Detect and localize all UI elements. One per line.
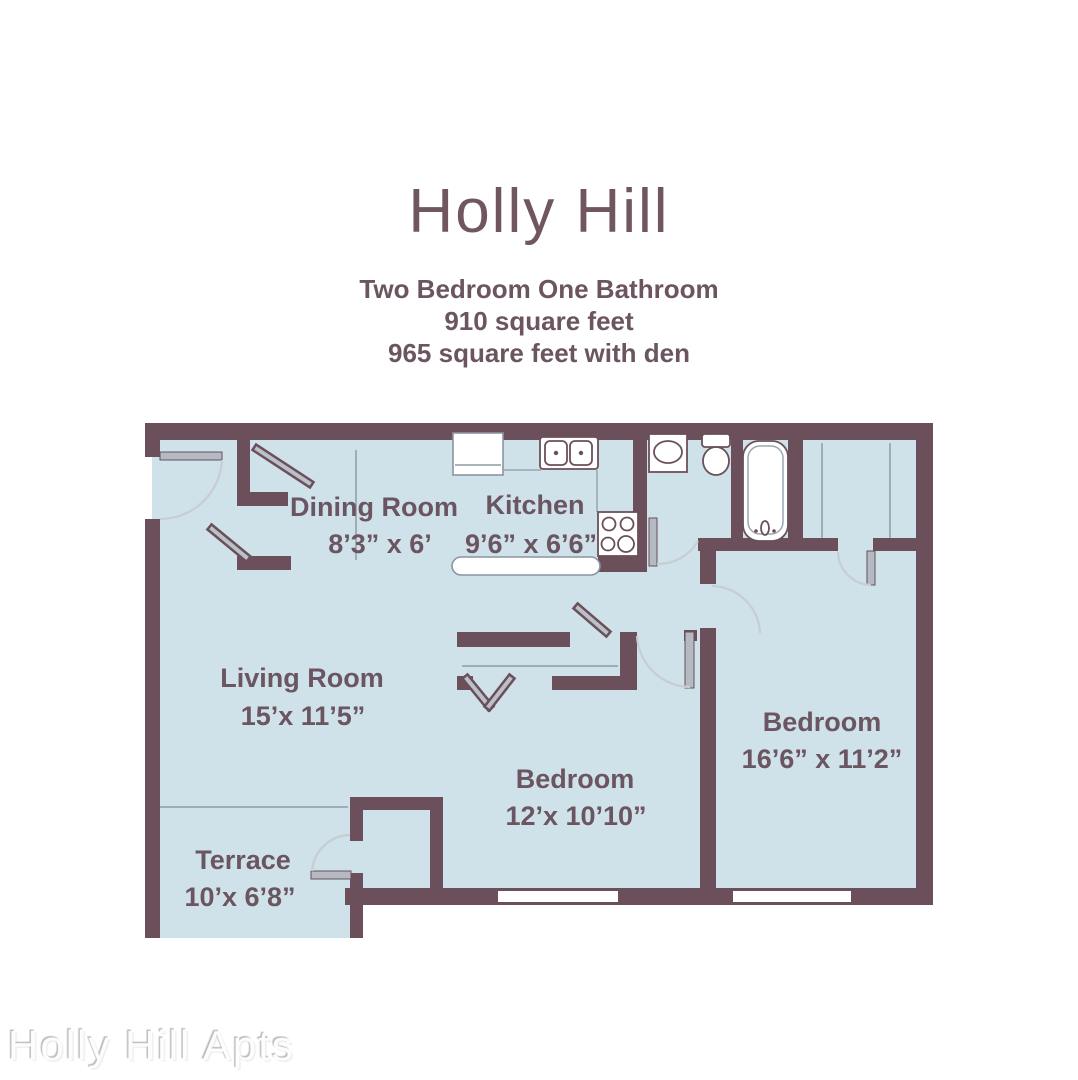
living-room-dims: 15’x 11’5” (241, 701, 366, 731)
sink-drain-right (579, 451, 583, 455)
wall-right (916, 440, 933, 905)
entry-door-slab (160, 452, 222, 460)
stove-burner-2 (621, 518, 634, 531)
terrace-right-wall (350, 873, 363, 938)
tub-handle-left (754, 529, 758, 533)
den-door-slab (867, 551, 875, 585)
sink-drain-left (554, 451, 558, 455)
hall-wall-stub (700, 538, 716, 584)
entry-closet-wall-v (237, 428, 250, 494)
bedroom-right-label: Bedroom (763, 707, 882, 737)
dining-room-label: Dining Room (290, 492, 458, 522)
closet-row-top-wall (457, 632, 570, 647)
tub-niche-right-wall (788, 440, 803, 538)
tub-handle-right (772, 529, 776, 533)
terrace-door-jamb (350, 797, 363, 841)
kitchen-counter (452, 557, 600, 575)
watermark: Holly Hill Apts (8, 1022, 295, 1070)
toilet-tank (702, 434, 730, 447)
stove-burner-4 (618, 536, 634, 552)
closet-row-bottom-mid (552, 676, 628, 690)
toilet-bowl (703, 447, 729, 475)
entry-closet-wall-h1 (237, 492, 288, 506)
bedroom-middle-dims: 12’x 10’10” (505, 801, 646, 831)
dining-room-dims: 8’3” x 6’ (328, 529, 432, 559)
wall-left (145, 519, 160, 938)
alcove-right-wall (430, 797, 443, 892)
bathroom-sink-basin (654, 441, 682, 463)
wall-top (145, 423, 933, 440)
stove-burner-3 (602, 538, 615, 551)
bedroom-right-window (733, 891, 851, 902)
bedroom-middle-label: Bedroom (516, 764, 635, 794)
terrace-label: Terrace (195, 845, 291, 875)
floor-plan-page: Holly Hill Two Bedroom One Bathroom 910 … (0, 0, 1078, 1080)
bedroom-divider-wall (700, 628, 716, 888)
terrace-door-slab (311, 871, 351, 879)
refrigerator (453, 433, 503, 475)
kitchen-dims: 9’6” x 6’6” (465, 529, 597, 559)
bedroom-right-dims: 16’6” x 11’2” (742, 744, 903, 774)
bedroom-middle-door-slab (685, 632, 694, 688)
floor-plan-drawing: Dining Room 8’3” x 6’ Kitchen 9’6” x 6’6… (0, 0, 1078, 1080)
terrace-dims: 10’x 6’8” (184, 882, 295, 912)
tub-faucet (761, 521, 769, 535)
stove-burner-1 (603, 518, 616, 531)
den-bottom-wall (873, 538, 933, 551)
alcove-top-wall (350, 797, 443, 810)
tub-niche-left-wall (731, 440, 743, 538)
bathroom-door-slab (649, 518, 657, 566)
kitchen-label: Kitchen (485, 490, 584, 520)
bedroom-middle-window (498, 891, 618, 902)
wall-left-top-stub (145, 423, 160, 457)
living-room-label: Living Room (220, 663, 384, 693)
